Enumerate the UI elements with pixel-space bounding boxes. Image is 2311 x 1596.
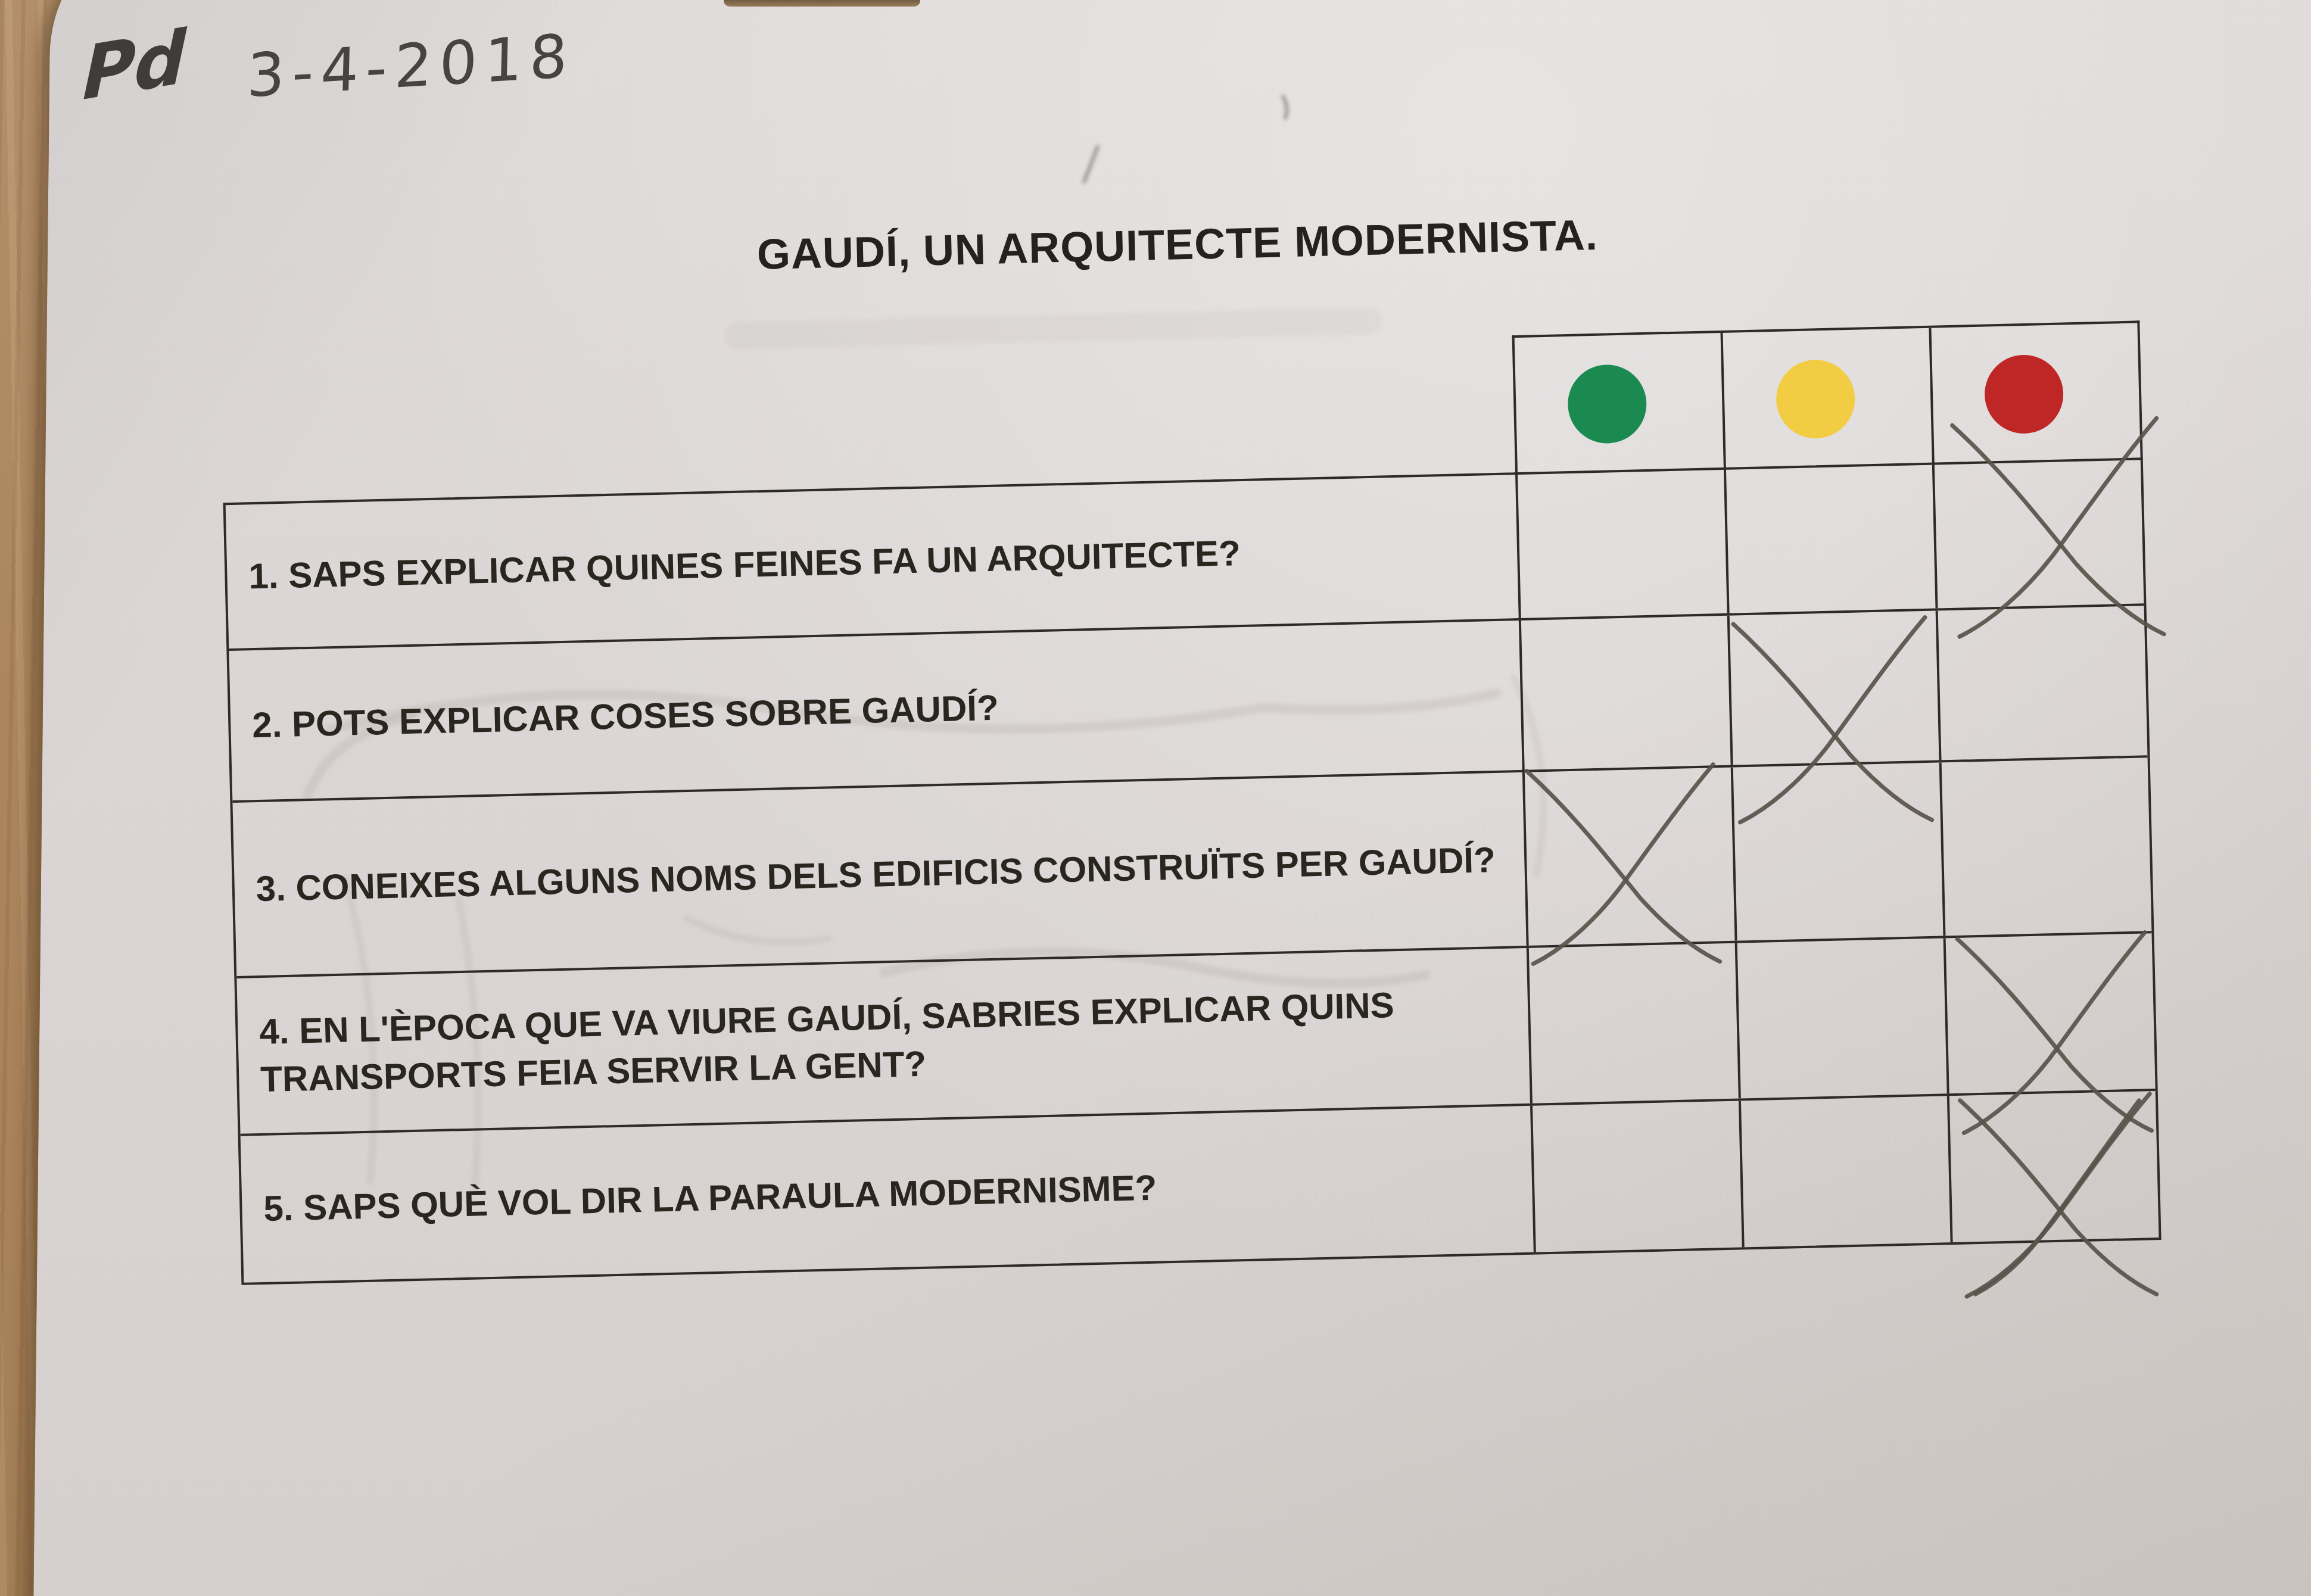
question-text: 5. SAPS QUÈ VOL DIR LA PARAULA MODERNISM… bbox=[241, 1106, 1536, 1283]
handwritten-byline: Pd 3-4-2018 bbox=[74, 12, 575, 110]
pencil-x-mark bbox=[1513, 756, 1730, 972]
green-column-header bbox=[1515, 333, 1726, 475]
question-text: 3. CONEIXES ALGUNS NOMS DELS EDIFICIS CO… bbox=[232, 772, 1528, 976]
page-title: GAUDÍ, UN ARQUITECTE MODERNISTA. bbox=[217, 197, 2138, 291]
green-answer-cell bbox=[1533, 1101, 1745, 1252]
photo-of-worksheet: { "byline": { "initials": "Pd", "date": … bbox=[0, 0, 2311, 1596]
handwritten-date: 3-4-2018 bbox=[246, 26, 575, 106]
green-answer-cell bbox=[1529, 943, 1741, 1104]
sheet-content: Pd 3-4-2018 GAUDÍ, UN ARQUITECTE MODERNI… bbox=[0, 0, 2311, 1596]
yellow-answer-cell bbox=[1726, 465, 1938, 613]
red-answer-cell bbox=[1942, 758, 2152, 936]
yellow-answer-cell bbox=[1730, 610, 1942, 765]
table-wood-sliver bbox=[724, 0, 920, 7]
yellow-column-header bbox=[1723, 328, 1935, 470]
yellow-answer-cell bbox=[1737, 938, 1949, 1098]
yellow-answer-cell bbox=[1741, 1096, 1953, 1247]
red-answer-cell bbox=[1949, 1091, 2159, 1242]
green-dot-icon bbox=[1567, 364, 1647, 444]
red-answer-cell bbox=[1946, 933, 2156, 1093]
handwritten-initials: Pd bbox=[76, 21, 181, 112]
question-text: 1. SAPS EXPLICAR QUINES FEINES FA UN ARQ… bbox=[226, 475, 1521, 649]
question-table: 1. SAPS EXPLICAR QUINES FEINES FA UN ARQ… bbox=[223, 457, 2161, 1285]
red-answer-cell bbox=[1935, 460, 2144, 608]
green-answer-cell bbox=[1518, 470, 1730, 618]
question-text: 4. EN L'ÈPOCA QUE VA VIURE GAUDÍ, SABRIE… bbox=[236, 948, 1533, 1134]
red-answer-cell bbox=[1938, 606, 2148, 760]
question-text: 2. POTS EXPLICAR COSES SOBRE GAUDÍ? bbox=[229, 621, 1524, 800]
yellow-dot-icon bbox=[1776, 359, 1856, 439]
green-answer-cell bbox=[1525, 768, 1737, 946]
pencil-x-mark bbox=[1947, 1085, 2167, 1305]
green-answer-cell bbox=[1521, 616, 1733, 770]
yellow-answer-cell bbox=[1733, 762, 1946, 940]
